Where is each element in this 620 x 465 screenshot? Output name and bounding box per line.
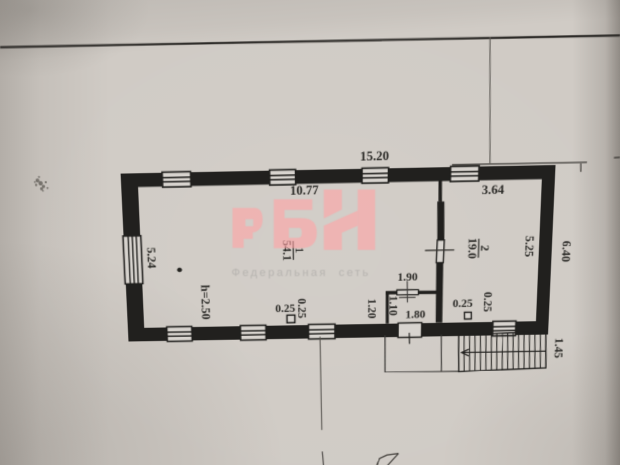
svg-text:Федеральная сеть: Федеральная сеть (232, 267, 371, 279)
